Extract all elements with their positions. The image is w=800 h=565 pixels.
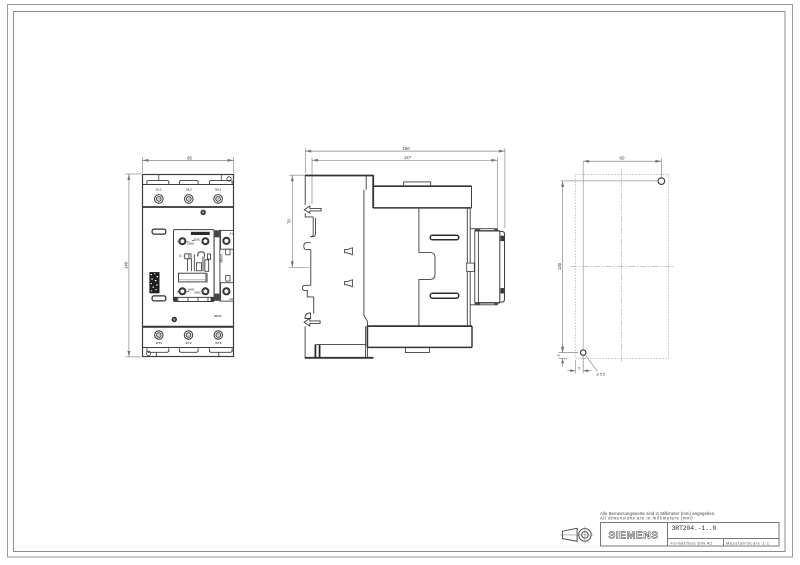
svg-text:A2: A2 bbox=[229, 297, 233, 301]
svg-text:SIEMENS: SIEMENS bbox=[608, 530, 658, 541]
svg-text:⌀ 5.5: ⌀ 5.5 bbox=[597, 372, 606, 376]
svg-text:3RT20: 3RT20 bbox=[214, 315, 222, 318]
svg-text:21NC: 21NC bbox=[194, 237, 201, 241]
svg-text:150: 150 bbox=[402, 146, 410, 151]
svg-text:5: 5 bbox=[578, 367, 580, 371]
svg-text:5: 5 bbox=[557, 355, 561, 357]
svg-text:2/T1: 2/T1 bbox=[156, 341, 162, 345]
svg-text:Format/Size DIN A2: Format/Size DIN A2 bbox=[671, 541, 713, 545]
svg-text:SIRIUS: SIRIUS bbox=[219, 254, 223, 263]
svg-text:A1: A1 bbox=[229, 232, 233, 236]
svg-text:3/L2: 3/L2 bbox=[186, 188, 192, 192]
svg-text:11: 11 bbox=[179, 253, 182, 257]
svg-text:6/T3: 6/T3 bbox=[215, 341, 221, 345]
svg-text:3RT204.-1..0: 3RT204.-1..0 bbox=[672, 525, 717, 533]
svg-text:1/L1: 1/L1 bbox=[155, 188, 161, 192]
svg-text:95: 95 bbox=[187, 155, 192, 160]
svg-text:13NO: 13NO bbox=[187, 242, 194, 246]
svg-text:5/L3: 5/L3 bbox=[215, 188, 221, 192]
svg-text:147: 147 bbox=[404, 155, 412, 160]
svg-text:22NC: 22NC bbox=[194, 291, 201, 295]
svg-text:130: 130 bbox=[557, 262, 562, 270]
svg-text:60: 60 bbox=[620, 156, 625, 161]
svg-text:4/T2: 4/T2 bbox=[185, 341, 191, 345]
svg-text:All dimensions are in millimet: All dimensions are in millimeters (mm) bbox=[600, 515, 693, 520]
svg-text:Masstab/Scale 1:1: Masstab/Scale 1:1 bbox=[726, 541, 769, 545]
svg-text:140: 140 bbox=[123, 261, 128, 269]
svg-text:70: 70 bbox=[287, 219, 292, 224]
